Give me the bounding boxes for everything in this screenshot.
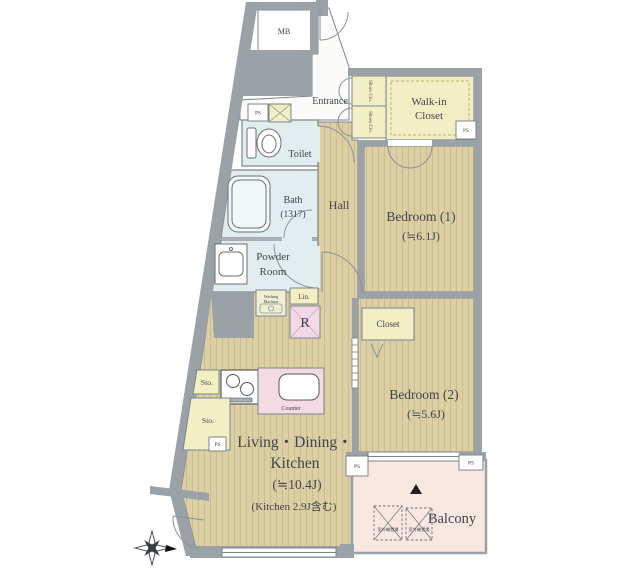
label-ps-3: PS	[354, 464, 360, 470]
label-bedroom1: Bedroom (1)	[386, 209, 455, 224]
label-shoes-lower: Shoes Clo.	[367, 111, 372, 133]
compass-icon	[135, 531, 177, 565]
label-ldk-size: (≒10.4J)	[272, 477, 321, 492]
label-outdoor-1: 室外機置場	[378, 526, 400, 533]
label-ps-1: PS	[255, 111, 261, 117]
label-mb: MB	[278, 27, 290, 36]
label-ldk-2: Kitchen	[270, 455, 319, 472]
label-powder-2: Room	[260, 266, 287, 278]
bathtub-icon	[228, 176, 270, 232]
label-fridge: R	[300, 316, 310, 331]
washbasin-icon	[215, 244, 247, 284]
label-linen: Lin.	[298, 293, 310, 301]
label-counter: Counter	[281, 406, 300, 412]
label-bath-size: (1317)	[280, 209, 305, 220]
label-bedroom2: Bedroom (2)	[389, 387, 458, 402]
label-bedroom2-size: (≒5.6J)	[407, 407, 445, 421]
label-bath: Bath	[284, 195, 303, 206]
label-toilet: Toilet	[288, 149, 311, 160]
label-entrance: Entrance	[312, 96, 348, 107]
label-sto-upper: Sto.	[201, 378, 213, 387]
label-powder-1: Powder	[256, 251, 290, 263]
label-ldk-1: Living・Dining・	[237, 434, 352, 451]
window-bedroom2-left	[352, 338, 358, 388]
room-balcony	[352, 460, 486, 553]
label-ps-4: PS	[468, 461, 474, 467]
sink-icon	[279, 374, 319, 400]
label-ldk-note: (Kitchen 2.9J含む)	[252, 499, 337, 513]
floor-plan-page: MB Entrance Walk-in Closet Shoes Clo. Sh…	[0, 0, 640, 569]
toilet-icon	[247, 128, 281, 158]
label-bedroom1-size: (≒6.1J)	[402, 229, 440, 243]
label-outdoor-2: 室外機置場	[409, 526, 431, 533]
label-balcony: Balcony	[428, 511, 477, 527]
label-washing-2: Machine	[264, 299, 279, 304]
label-walk-in-1: Walk-in	[411, 96, 447, 108]
label-ps-2: PS	[463, 128, 469, 134]
floor-plan: MB Entrance Walk-in Closet Shoes Clo. Sh…	[0, 0, 640, 569]
label-ps-5: PS	[214, 442, 220, 448]
label-closet: Closet	[376, 319, 400, 329]
water-heater-icon	[269, 104, 291, 122]
label-hall: Hall	[329, 198, 350, 212]
label-walk-in-2: Closet	[415, 110, 443, 122]
label-shoes-upper: Shoes Clo.	[367, 80, 372, 102]
label-sto-lower: Sto.	[202, 416, 214, 425]
